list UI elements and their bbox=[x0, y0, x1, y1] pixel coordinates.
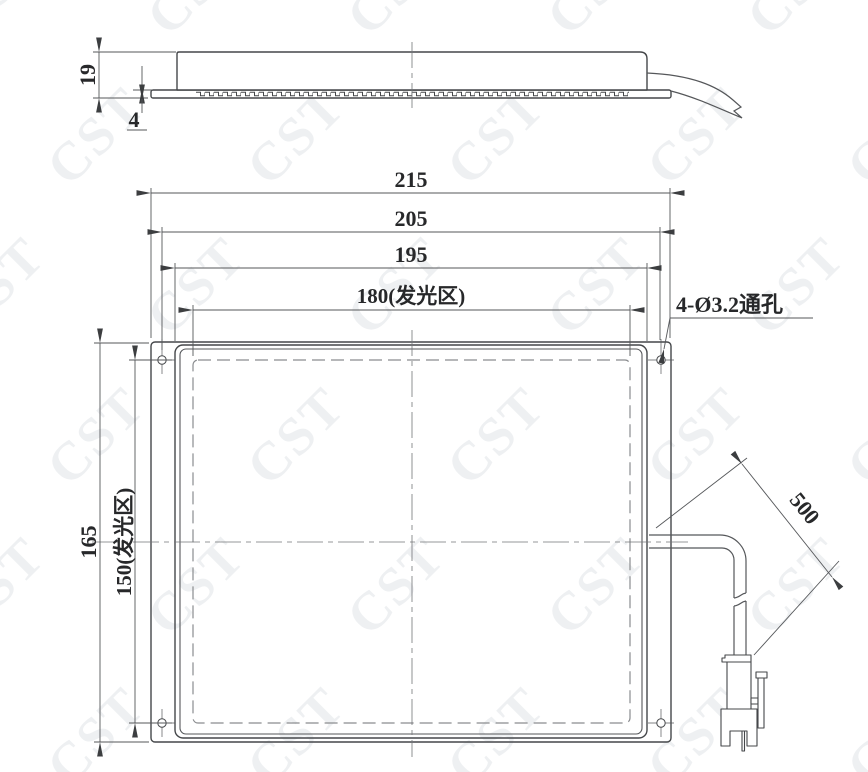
side-view: 19 4 bbox=[75, 42, 742, 132]
mounting-hole bbox=[648, 709, 674, 737]
connector-latch-tab bbox=[756, 672, 767, 678]
front-view: 215 205 195 180(发光区) bbox=[76, 167, 839, 757]
side-serration bbox=[196, 91, 629, 97]
engineering-drawing: CSTCSTCSTCSTCSTCSTCSTCSTCSTCSTCSTCSTCSTC… bbox=[0, 0, 868, 772]
dim-emitting-height: 150(发光区) bbox=[112, 360, 172, 723]
hole-spacing-dim-label: 205 bbox=[395, 206, 428, 231]
overall-height-dim-label: 165 bbox=[76, 526, 101, 559]
side-height-dim-label: 19 bbox=[75, 64, 100, 86]
connector-body bbox=[727, 662, 751, 709]
dim-cable-length: 500 bbox=[656, 458, 839, 655]
connector-base bbox=[721, 709, 757, 746]
connector bbox=[721, 655, 767, 751]
emitting-width-dim-label: 180(发光区) bbox=[357, 284, 466, 308]
connector-flange bbox=[722, 655, 751, 662]
callout-through-holes: 4-Ø3.2通孔 bbox=[664, 292, 813, 349]
base-thickness-dim-label: 4 bbox=[129, 107, 140, 132]
emitting-area bbox=[193, 360, 630, 723]
panel-inner-lip bbox=[180, 349, 642, 734]
connector-latch bbox=[758, 678, 764, 728]
dim-base-thickness: 4 bbox=[127, 66, 153, 132]
cable-break-icon bbox=[734, 601, 746, 606]
mounting-holes bbox=[149, 339, 674, 737]
panel-lid bbox=[175, 345, 647, 738]
frame-width-dim-label: 195 bbox=[395, 242, 428, 267]
cable-length-dim-label: 500 bbox=[785, 488, 825, 529]
emitting-height-dim-label: 150(发光区) bbox=[112, 488, 136, 597]
cable bbox=[649, 535, 746, 656]
hole-callout-label: 4-Ø3.2通孔 bbox=[676, 292, 783, 317]
connector-bridge bbox=[751, 698, 758, 704]
backlight-panel-drawing: 19 4 bbox=[0, 0, 868, 772]
overall-width-dim-label: 215 bbox=[395, 167, 428, 192]
dim-hole-spacing: 205 bbox=[162, 206, 660, 350]
connector-pin bbox=[742, 731, 745, 751]
cable-break-icon bbox=[734, 593, 746, 598]
